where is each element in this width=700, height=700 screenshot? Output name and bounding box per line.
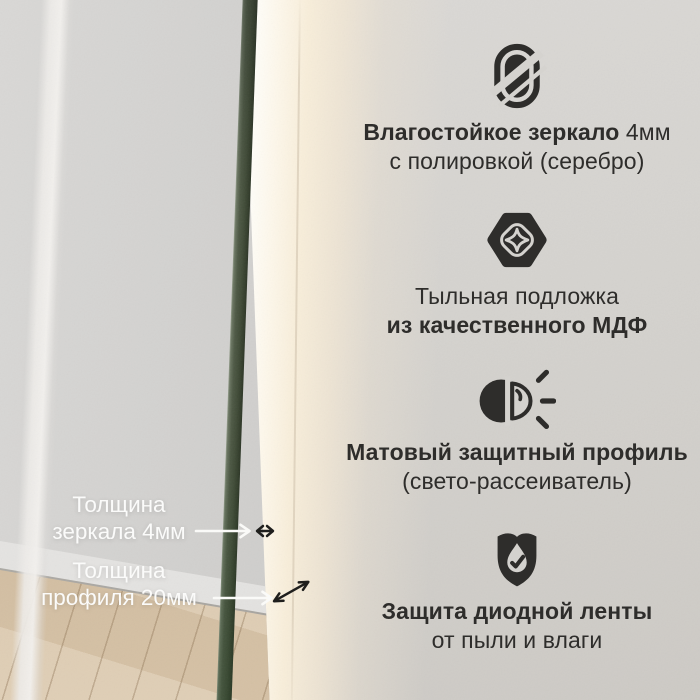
product-infographic: Толщина зеркала 4мм Толщина профиля 20мм…	[0, 0, 700, 700]
feature-2-line1: Тыльная подложка	[387, 282, 648, 311]
mdf-backing-icon	[481, 210, 553, 270]
feature-1-line2: с полировкой (серебро)	[363, 147, 670, 176]
feature-4-line1-bold: Защита диодной ленты	[382, 597, 653, 626]
feature-1-line1-bold: Влагостойкое зеркало	[363, 119, 619, 145]
feature-1-line1: Влагостойкое зеркало 4мм	[363, 118, 670, 147]
feature-2-line2-bold: из качественного МДФ	[387, 311, 648, 340]
mirror-thickness-label: Толщина зеркала 4мм	[14, 491, 224, 545]
mirror-thickness-line1: Толщина	[14, 491, 224, 518]
feature-3-text: Матовый защитный профиль (свето-рассеива…	[346, 438, 688, 496]
feature-4-line2: от пыли и влаги	[382, 626, 653, 655]
feature-3-line1-bold: Матовый защитный профиль	[346, 438, 688, 467]
feature-matte-profile: Матовый защитный профиль (свето-рассеива…	[334, 369, 700, 496]
profile-thickness-line1: Толщина	[14, 557, 224, 584]
feature-2-text: Тыльная подложка из качественного МДФ	[387, 282, 648, 340]
feature-moisture-resistant-mirror: Влагостойкое зеркало 4мм с полировкой (с…	[334, 40, 700, 176]
feature-1-line1-rest: 4мм	[619, 119, 670, 145]
profile-thickness-line2: профиля 20мм	[14, 584, 224, 611]
feature-3-line2: (свето-рассеиватель)	[346, 467, 688, 496]
profile-thickness-label: Толщина профиля 20мм	[14, 557, 224, 611]
feature-1-text: Влагостойкое зеркало 4мм с полировкой (с…	[363, 118, 670, 176]
feature-led-protection: Защита диодной ленты от пыли и влаги	[334, 529, 700, 655]
mirror-thickness-line2: зеркала 4мм	[14, 518, 224, 545]
feature-4-text: Защита диодной ленты от пыли и влаги	[382, 597, 653, 655]
shield-check-icon	[490, 529, 544, 589]
light-diffuser-icon	[478, 369, 556, 433]
mirror-icon	[487, 40, 547, 112]
feature-mdf-backing: Тыльная подложка из качественного МДФ	[334, 210, 700, 340]
